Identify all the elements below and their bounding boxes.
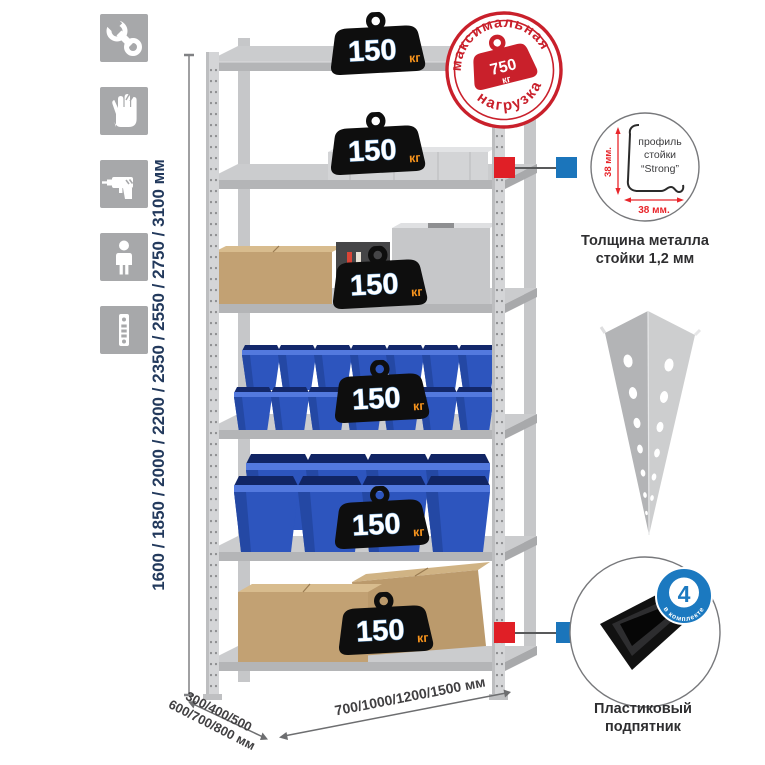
top-connector-blue-marker (556, 157, 577, 178)
svg-text:кг: кг (411, 285, 423, 300)
top-connector-line (515, 167, 556, 169)
shelving-infographic: 1600 / 1850 / 2000 / 2200 / 2350 / 2550 … (0, 0, 765, 765)
svg-text:кг: кг (409, 51, 421, 66)
shelf-load-weight-6: 150 кг (324, 589, 445, 661)
svg-text:150: 150 (355, 614, 405, 648)
svg-text:стойки: стойки (644, 149, 676, 161)
shelf-load-weight-4: 150 кг (320, 357, 441, 429)
foot-caption: Пластиковый подпятник (563, 700, 723, 736)
post-profile-detail: 38 мм. 38 мм. профиль стойки “Strong” (587, 110, 703, 226)
bottom-connector-line (515, 632, 556, 634)
svg-text:150: 150 (347, 34, 397, 68)
max-load-stamp: максимальная нагрузка 750 кг (438, 8, 570, 132)
svg-text:38 мм.: 38 мм. (638, 205, 670, 216)
svg-text:150: 150 (349, 268, 399, 302)
profile-caption: Толщина металла стойки 1,2 мм (565, 232, 725, 268)
svg-text:кг: кг (417, 631, 429, 646)
svg-text:кг: кг (409, 151, 421, 166)
svg-text:кг: кг (413, 525, 425, 540)
svg-text:“Strong”: “Strong” (641, 163, 679, 175)
wrench-icon (100, 14, 148, 62)
svg-text:кг: кг (413, 399, 425, 414)
svg-text:профиль: профиль (638, 136, 682, 148)
shelf-load-weight-3: 150 кг (318, 243, 439, 315)
shelf-load-weight-5: 150 кг (320, 483, 441, 555)
svg-text:150: 150 (347, 134, 397, 168)
top-connector-red-marker (494, 157, 515, 178)
shelf-load-weight-1: 150 кг (316, 9, 437, 81)
set-count-badge: 4 в комплекте (654, 566, 714, 626)
svg-text:150: 150 (351, 508, 401, 542)
height-dimension-label: 1600 / 1850 / 2000 / 2200 / 2350 / 2550 … (130, 60, 188, 690)
bottom-connector-red-marker (494, 622, 515, 643)
angle-post-image (593, 303, 708, 543)
svg-text:4: 4 (678, 581, 691, 607)
svg-text:150: 150 (351, 382, 401, 416)
shelf-load-weight-2: 150 кг (316, 109, 437, 181)
svg-text:38 мм.: 38 мм. (603, 147, 614, 177)
